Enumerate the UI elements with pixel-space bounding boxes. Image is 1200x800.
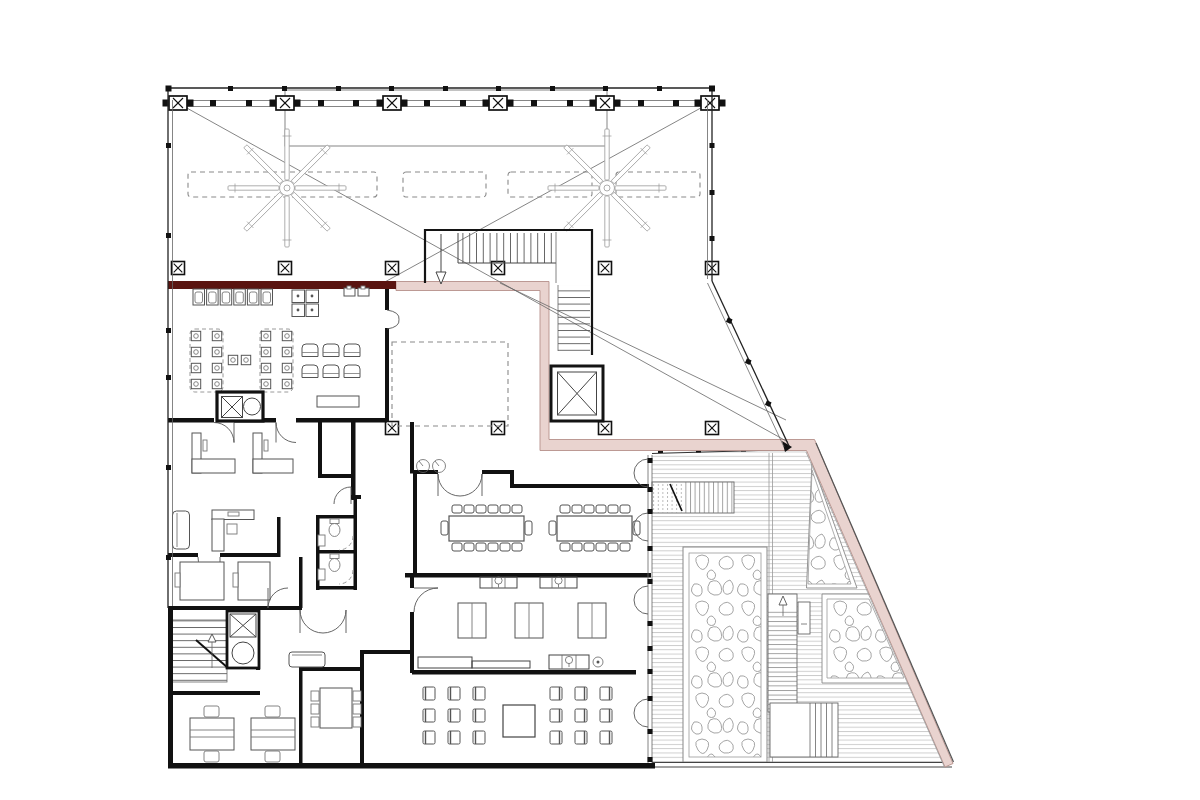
counter (418, 657, 530, 668)
deck-terrace (652, 446, 952, 768)
conference-room (405, 460, 651, 589)
roof-diagonal-1 (176, 102, 788, 442)
glazed-wall-east (634, 455, 653, 763)
restrooms (316, 495, 361, 590)
water-station (480, 577, 517, 588)
deck-stair-upper (652, 482, 734, 513)
workshop-room (410, 575, 636, 675)
desk (253, 433, 293, 473)
desk (251, 706, 295, 762)
canopy-outline (285, 90, 607, 146)
column-marker-icon (163, 96, 194, 110)
double-table (515, 603, 543, 638)
planter-left (683, 547, 767, 762)
double-table (458, 603, 486, 638)
deck-bench (798, 602, 810, 634)
column-marker-icon (599, 262, 612, 275)
column-marker-icon (695, 96, 726, 110)
water-station (549, 655, 589, 669)
column-marker-icon (386, 262, 399, 275)
sink-icon (318, 535, 325, 546)
sofa (173, 511, 190, 549)
toilet-icon (329, 554, 340, 572)
ceiling-fan-icon (228, 129, 346, 247)
deck-steps-lower (770, 703, 838, 757)
sink-icon (318, 569, 325, 580)
lobby-carpet (392, 342, 508, 426)
column-marker-icon (483, 96, 514, 110)
column-marker-icon (492, 422, 505, 435)
chair-block-right (550, 687, 612, 744)
lecture-room (423, 687, 612, 744)
desk (190, 706, 234, 762)
lounge-chairs (302, 344, 360, 378)
double-table (578, 603, 606, 638)
column-marker-icon (270, 96, 301, 110)
two-seat-table (228, 355, 250, 364)
low-table (317, 396, 359, 407)
work-table (175, 562, 224, 600)
center-table (503, 705, 535, 737)
stair-run-icon (172, 620, 228, 682)
column-marker-icon (172, 262, 185, 275)
column-marker-icon (590, 96, 621, 110)
kitchen-dining (168, 286, 399, 443)
skylights (188, 172, 700, 197)
door-swing-icon (634, 586, 648, 614)
door-swing-icon (634, 699, 648, 727)
central-stair (425, 230, 592, 355)
column-marker-icon (377, 96, 408, 110)
conference-table (441, 505, 532, 551)
sofa (289, 652, 325, 667)
dining-table-group (190, 329, 223, 392)
desk (212, 510, 254, 551)
conference-table (549, 505, 640, 551)
dining-table-group (260, 329, 293, 392)
work-table (233, 562, 270, 600)
meeting-table (311, 688, 361, 728)
elevator-icon (227, 611, 259, 668)
core-southwest (168, 588, 412, 768)
chair-block-left (423, 687, 485, 744)
column-marker-icon (279, 262, 292, 275)
roof-hall (163, 90, 789, 442)
door-swing-icon (634, 459, 648, 487)
water-station (540, 577, 577, 588)
column-marker-icon (706, 422, 719, 435)
elevator-icon (551, 366, 603, 421)
deck-stair-middle (768, 594, 797, 712)
toilet-icon (329, 519, 340, 537)
cooktop (292, 290, 319, 317)
kitchen-island (217, 392, 263, 421)
column-marker-icon (599, 422, 612, 435)
desk (192, 433, 235, 473)
kitchen-units (193, 289, 273, 305)
floor-plan-canvas (0, 0, 1200, 800)
offices-west (168, 422, 414, 608)
